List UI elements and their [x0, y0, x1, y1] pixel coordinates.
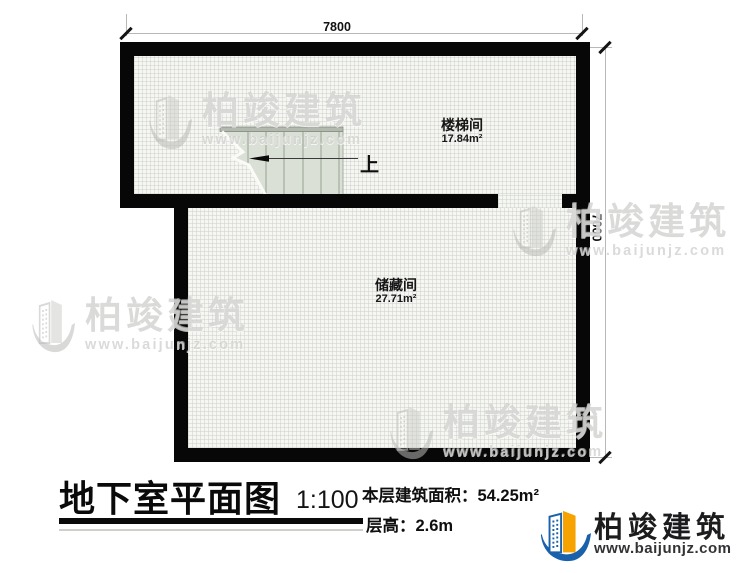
wall-left-upper: [120, 42, 134, 208]
title-underline-thin: [59, 529, 363, 531]
wall-right: [576, 42, 590, 462]
stair-body: [222, 132, 343, 197]
floor-storage-room: [188, 208, 576, 448]
room-name: 储藏间: [346, 278, 446, 293]
staircase-drawing: [216, 124, 362, 196]
drawing-scale: 1:100: [296, 486, 359, 515]
room-label-storage: 储藏间 27.71m²: [346, 278, 446, 305]
wall-middle-stub: [562, 194, 576, 208]
stair-top-landing-edge: [220, 127, 343, 132]
wall-bottom: [174, 448, 590, 462]
floor-passage-opening: [498, 194, 562, 208]
room-area: 17.84m²: [412, 134, 512, 146]
wall-left-lower: [174, 194, 188, 462]
brand-building-icon: [537, 508, 591, 562]
title-underline-thick: [59, 518, 363, 524]
wall-top: [120, 42, 590, 56]
room-area: 27.71m²: [346, 294, 446, 306]
room-name: 楼梯间: [412, 118, 512, 133]
page-title: 地下室平面图: [59, 470, 281, 522]
floor-plan-canvas: 上 楼梯间 17.84m² 储藏间 27.71m² 7800 7000 地下室平…: [0, 0, 750, 573]
floor-height-text: 层高：2.6m: [366, 512, 453, 536]
room-label-stairwell: 楼梯间 17.84m²: [412, 118, 512, 145]
dim-value-right: 7000: [589, 205, 604, 251]
floor-area-text: 本层建筑面积：54.25m²: [362, 482, 539, 506]
stair-up-label: 上: [360, 150, 379, 177]
watermark-building-icon: [29, 297, 75, 353]
brand-website: www.baijunjz.com: [594, 540, 731, 557]
dim-value-top: 7800: [306, 20, 368, 34]
dim-line-right: [605, 47, 606, 457]
